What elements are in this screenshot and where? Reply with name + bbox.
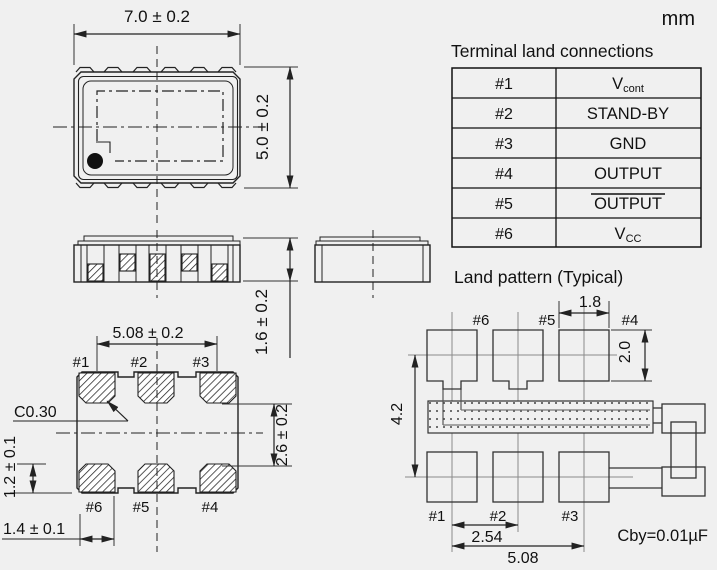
ground-plane-band [428, 401, 653, 433]
pin-cell: #6 [495, 226, 513, 243]
bypass-cap-value: Cby=0.01µF [617, 527, 708, 545]
drawing-svg: mm 7.0 ± 0.2 5.0 ± 0.2 [0, 0, 717, 570]
cap-pad-bottom [662, 467, 705, 496]
land-span-dim: 5.08 [507, 550, 538, 567]
cap-pad-top [662, 404, 705, 433]
package-drawing-sheet: mm 7.0 ± 0.2 5.0 ± 0.2 [0, 0, 717, 570]
pad-label: #4 [202, 499, 219, 516]
signal-cell: STAND-BY [587, 105, 669, 123]
land-pad-label: #1 [429, 508, 446, 525]
cap-body [671, 422, 696, 478]
pad-label: #1 [73, 354, 90, 371]
top-view-width-dim: 7.0 ± 0.2 [124, 7, 190, 26]
pad-width-dim: 1.4 ± 0.1 [3, 521, 65, 538]
land-pad-label: #4 [622, 312, 639, 329]
pad-label: #2 [131, 354, 148, 371]
top-view-height-dim: 5.0 ± 0.2 [253, 94, 272, 160]
chamfer-callout: C0.30 [14, 404, 57, 421]
pin1-marker-dot [87, 153, 103, 169]
crystal-outline [97, 91, 223, 161]
signal-cell: Vcont [612, 75, 644, 95]
signal-cell: OUTPUT [594, 195, 662, 213]
side-view-end [315, 230, 430, 298]
pin-cell: #1 [495, 76, 513, 93]
pad-2 [138, 373, 174, 403]
land-pattern-title: Land pattern (Typical) [454, 267, 623, 287]
side-view-front: 1.6 ± 0.2 [74, 230, 298, 358]
pad-label: #5 [133, 499, 150, 516]
terminal-table: Terminal land connections #1 Vcont #2 ST… [451, 41, 701, 247]
terminal-table-rows: #1 Vcont #2 STAND-BY #3 GND #4 OUTPUT #5… [495, 75, 669, 245]
pad-6 [79, 464, 115, 492]
unit-label: mm [662, 8, 695, 30]
pin-cell: #3 [495, 136, 513, 153]
lid-top [84, 236, 233, 241]
pad-height-dim: 1.2 ± 0.1 [2, 436, 19, 498]
pad-label: #3 [193, 354, 210, 371]
signal-cell: VCC [615, 225, 642, 245]
pad-5 [138, 464, 174, 492]
pad-1 [79, 373, 115, 403]
side-view-height-dim: 1.6 ± 0.2 [252, 289, 271, 355]
bottom-view: 5.08 ± 0.2 #1 #2 #3 #6 #5 #4 C0.30 [2, 325, 292, 552]
signal-cell: GND [610, 135, 647, 153]
land-pad-label: #2 [490, 508, 507, 525]
bottom-view-span-dim: 5.08 ± 0.2 [112, 325, 183, 342]
pad-4 [200, 464, 236, 492]
pin1-notch [96, 142, 110, 153]
pad-label: #6 [86, 499, 103, 516]
land-pad-label: #3 [562, 508, 579, 525]
land-row-pitch-dim: 4.2 [389, 403, 406, 425]
land-pad-pitch-dim: 2.54 [471, 529, 502, 546]
land-pad-label: #6 [473, 312, 490, 329]
pad-3 [200, 373, 236, 403]
chamfer-leader-arrow [107, 401, 128, 421]
land-pad-height-dim: 2.0 [617, 341, 634, 363]
pad-gap-dim: 2.6 ± 0.2 [274, 404, 291, 466]
land-pad-width-dim: 1.8 [579, 294, 601, 311]
signal-cell: OUTPUT [594, 165, 662, 183]
land-pattern: Land pattern (Typical) [389, 267, 708, 567]
land-pad-label: #5 [539, 312, 556, 329]
pin-cell: #5 [495, 196, 513, 213]
terminal-table-title: Terminal land connections [451, 41, 654, 61]
pin-cell: #4 [495, 166, 513, 183]
pin-cell: #2 [495, 106, 513, 123]
top-view: 7.0 ± 0.2 5.0 ± 0.2 [53, 7, 298, 228]
